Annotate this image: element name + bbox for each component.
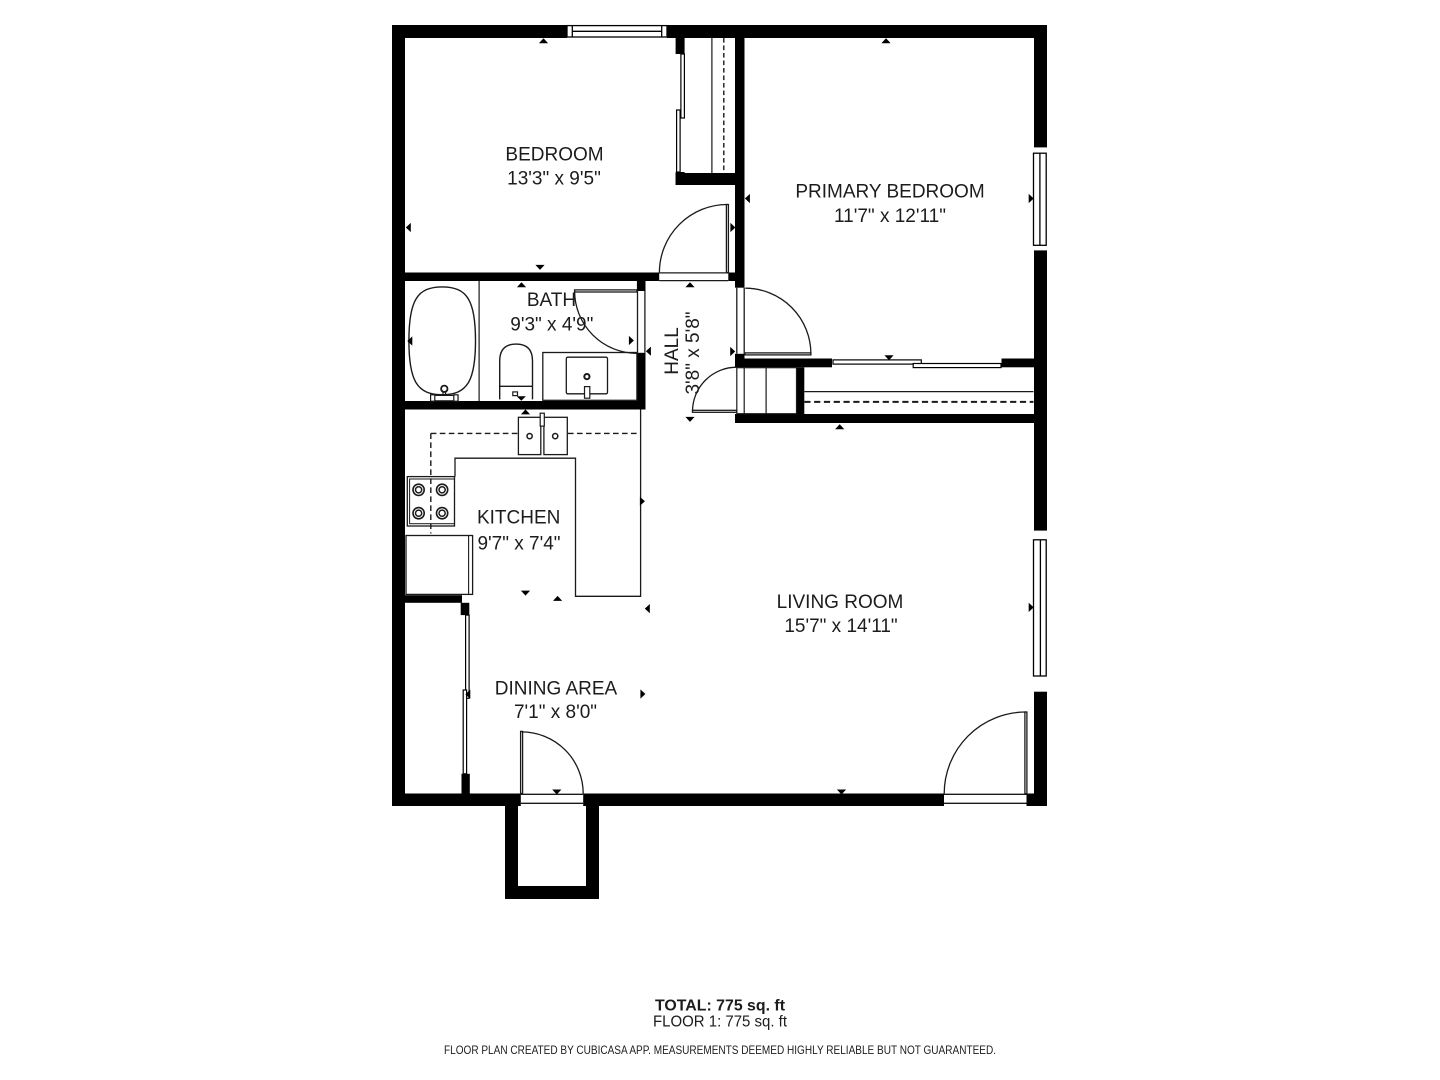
svg-text:KITCHEN: KITCHEN [477, 507, 560, 528]
svg-text:13'3" x 9'5": 13'3" x 9'5" [507, 168, 601, 189]
svg-text:7'1" x 8'0": 7'1" x 8'0" [514, 702, 597, 723]
svg-text:9'7" x 7'4": 9'7" x 7'4" [477, 533, 560, 554]
svg-text:HALL: HALL [662, 327, 683, 375]
svg-text:FLOOR PLAN CREATED BY CUBICASA: FLOOR PLAN CREATED BY CUBICASA APP. MEAS… [444, 1043, 996, 1057]
svg-text:TOTAL: 775 sq. ft: TOTAL: 775 sq. ft [655, 997, 785, 1014]
svg-text:3'8" x 5'8": 3'8" x 5'8" [683, 311, 704, 394]
svg-text:LIVING ROOM: LIVING ROOM [777, 592, 904, 613]
svg-text:FLOOR 1: 775 sq. ft: FLOOR 1: 775 sq. ft [653, 1013, 788, 1030]
svg-text:15'7" x 14'11": 15'7" x 14'11" [784, 616, 897, 637]
svg-text:DINING AREA: DINING AREA [495, 678, 618, 699]
svg-text:BEDROOM: BEDROOM [505, 145, 603, 166]
svg-text:11'7" x 12'11": 11'7" x 12'11" [834, 206, 946, 227]
svg-text:9'3" x 4'9": 9'3" x 4'9" [510, 314, 593, 335]
svg-text:PRIMARY BEDROOM: PRIMARY BEDROOM [795, 182, 984, 203]
svg-text:BATH: BATH [527, 290, 576, 311]
